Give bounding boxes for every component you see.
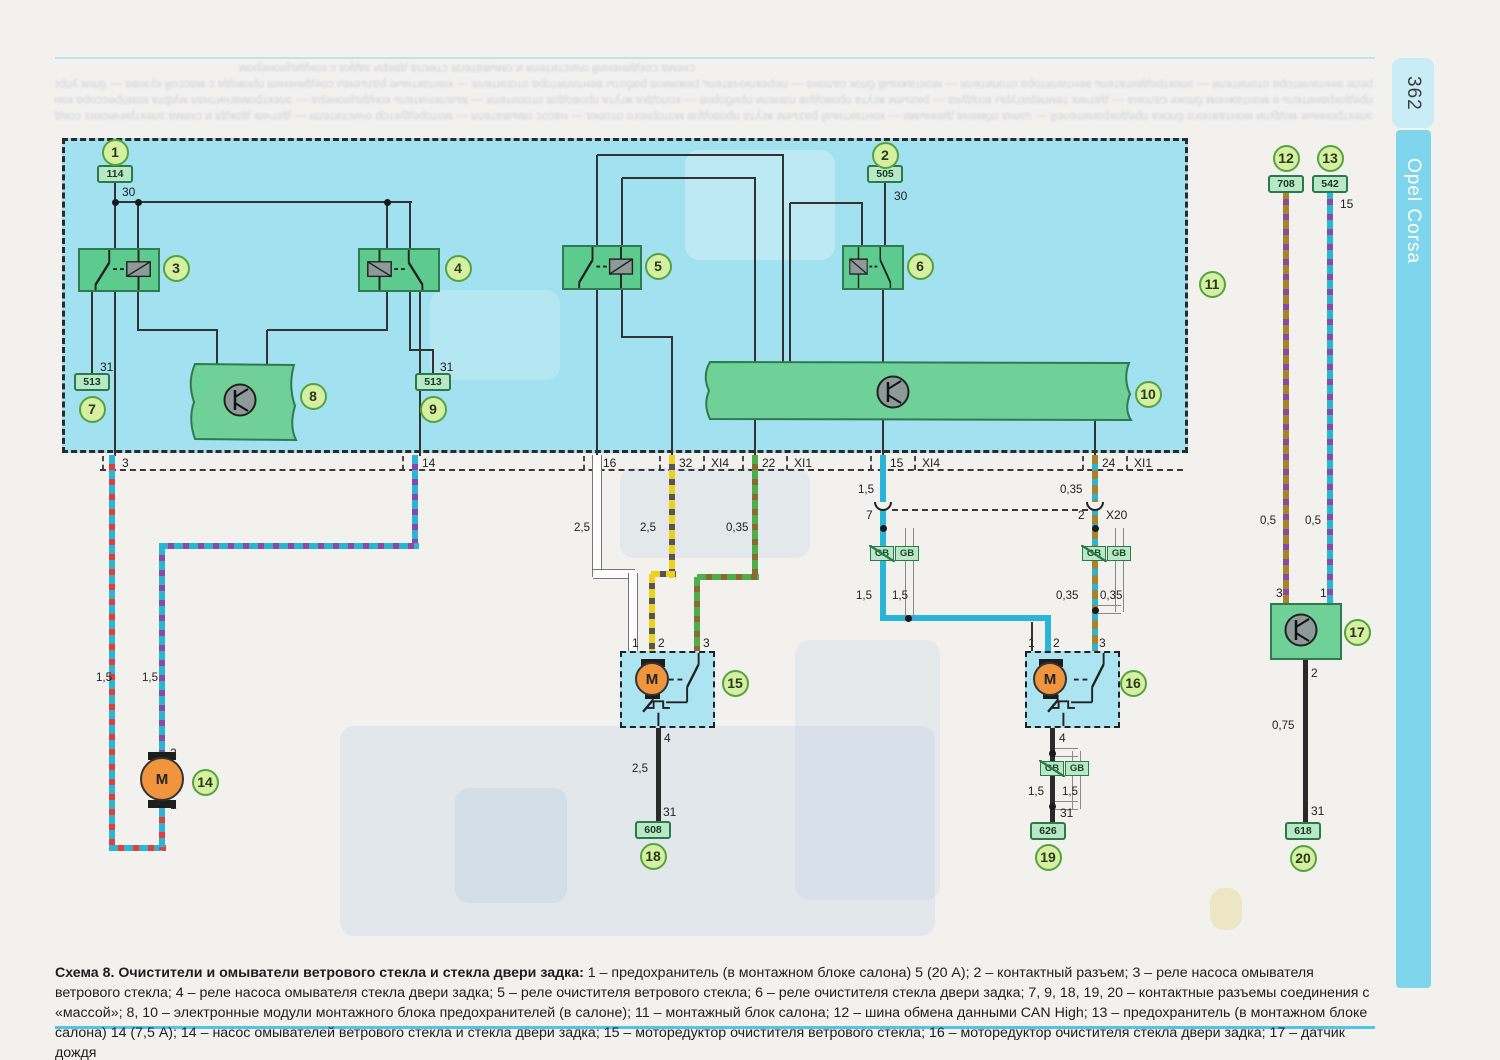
wire-label: 3 (1276, 586, 1283, 600)
wire-label: 7 (866, 508, 873, 522)
callout-circle: 13 (1317, 145, 1344, 172)
wire-label: 2,5 (632, 763, 648, 775)
callout-circle: 19 (1035, 844, 1062, 871)
code-box: 114 (97, 165, 133, 183)
wire-label: 3 (1099, 636, 1106, 650)
ghost-shape (455, 788, 567, 903)
wire (386, 202, 388, 250)
wire (671, 337, 673, 456)
connector-arc (874, 502, 892, 511)
brand-label: Opel Corsa (1402, 158, 1424, 264)
wire (1327, 190, 1333, 603)
code-box: 513 (74, 373, 110, 391)
top-rule (55, 57, 1375, 59)
transistor-icon (221, 381, 259, 419)
motor-m-label: M (1040, 669, 1060, 689)
transistor-icon (874, 373, 912, 411)
pin-number: 24 (1102, 456, 1115, 470)
junction-dot (905, 615, 912, 622)
wire (159, 546, 165, 757)
wire-label: 1 (632, 636, 639, 650)
wire-label: 1,5 (892, 590, 908, 602)
gb-strike (869, 545, 895, 562)
wire (114, 290, 116, 456)
wire-label: 31 (1311, 804, 1324, 818)
pin-bracket (786, 456, 788, 470)
gb-box: GB (895, 546, 919, 561)
wire-label: 2,5 (574, 522, 590, 534)
wire-label: 1,5 (1062, 786, 1078, 798)
wire (621, 178, 623, 247)
relay-symbol (844, 247, 902, 288)
wire-label: 2 (658, 636, 665, 650)
relay (358, 248, 440, 292)
code-box: 626 (1030, 822, 1066, 840)
junction-dot (1049, 803, 1056, 810)
pin-connector-name: XI4 (711, 456, 729, 470)
wire-label: 4 (1059, 731, 1066, 745)
code-box: 618 (1285, 822, 1321, 840)
wire-label: 30 (894, 189, 907, 203)
wire (410, 349, 434, 351)
wire-label: 1,5 (142, 672, 158, 684)
callout-circle: 18 (640, 843, 667, 870)
brand-sidebar: Opel Corsa (1396, 130, 1431, 988)
wire (649, 574, 655, 653)
pin-number: 22 (762, 456, 775, 470)
wire (267, 329, 387, 331)
wire (1303, 660, 1308, 824)
wire-label: 3 (703, 636, 710, 650)
wire-label: 31 (440, 360, 453, 374)
wire-label: 0,35 (1060, 484, 1082, 496)
pin-bracket (870, 456, 872, 470)
callout-circle: 14 (192, 769, 219, 796)
wire (138, 329, 218, 331)
wire-label: 0,5 (1305, 515, 1321, 527)
wire (880, 455, 886, 621)
ghost-text-line: схема соединений очистителя и омывателя … (215, 62, 695, 76)
callout-circle: 15 (722, 670, 749, 697)
gb-strike (1081, 545, 1107, 562)
wire (754, 420, 756, 456)
wire-label: 2 (1311, 666, 1318, 680)
junction-dot (384, 199, 391, 206)
wire (1095, 605, 1121, 614)
pin-number: 3 (122, 456, 129, 470)
relay-symbol (360, 250, 438, 290)
wire (622, 177, 756, 179)
ghost-text-line: предохранитель в монтажном блоке салона … (55, 94, 1373, 108)
wire-label: 15 (1340, 197, 1353, 211)
transistor-symbol (221, 381, 259, 419)
wire-label: 0,35 (726, 522, 748, 534)
relay (562, 245, 642, 290)
pin-bracket (914, 456, 916, 470)
code-box: 513 (415, 373, 451, 391)
wire (91, 290, 93, 374)
wire (137, 290, 139, 331)
ghost-shape (685, 150, 835, 260)
wire (884, 183, 886, 247)
relay (842, 245, 904, 290)
callout-circle: 12 (1273, 145, 1300, 172)
callout-circle: 6 (907, 253, 934, 280)
callout-circle: 9 (420, 396, 447, 423)
ghost-shape (620, 468, 810, 558)
wire-label: 1,5 (856, 590, 872, 602)
wire-label: 0,75 (1272, 720, 1294, 732)
pin-bracket (742, 456, 744, 470)
transistor-icon (1282, 611, 1320, 649)
wire-label: 30 (122, 185, 135, 199)
gb-box: GB (1065, 761, 1089, 776)
wire (266, 330, 268, 364)
callout-circle: 7 (79, 396, 106, 423)
transistor-symbol (1282, 611, 1320, 649)
wire (409, 290, 411, 351)
callout-circle: 8 (300, 383, 327, 410)
motor-internal (622, 653, 713, 726)
wire (656, 728, 661, 824)
wire (905, 528, 914, 620)
wire-label: X20 (1106, 508, 1127, 522)
pin-bracket (703, 456, 705, 470)
pin-bracket (402, 456, 404, 470)
wire (789, 203, 791, 364)
pin-number: 15 (890, 456, 903, 470)
figure-caption: Схема 8. Очистители и омыватели ветровог… (55, 964, 1377, 1060)
wire-label: 2 (1078, 508, 1085, 522)
wire-label: 31 (100, 360, 113, 374)
motor-m-label: M (642, 669, 662, 689)
pin-connector-name: XI4 (922, 456, 940, 470)
wire (216, 330, 218, 364)
junction-dot (135, 199, 142, 206)
relay-symbol (80, 250, 158, 290)
wire (790, 202, 863, 204)
junction-dot (1092, 525, 1099, 532)
wire (137, 202, 139, 250)
wire (752, 455, 758, 580)
wire (386, 290, 388, 331)
electronic-module (700, 360, 1135, 422)
wire-label: 2 (1053, 636, 1060, 650)
gb-box: GB (1107, 546, 1131, 561)
wire-label: 0,35 (1100, 590, 1122, 602)
wire (115, 201, 412, 203)
callout-circle: 4 (445, 255, 472, 282)
pin-bracket (583, 456, 585, 470)
gb-strike (1039, 760, 1065, 777)
wire (882, 420, 884, 456)
pin-bracket (1126, 456, 1128, 470)
gb-box: GB (1040, 761, 1064, 776)
callout-circle: 5 (645, 253, 672, 280)
wire-label: 31 (1060, 806, 1073, 820)
ghost-shape (1210, 888, 1242, 930)
wire-label: 1 (1320, 586, 1327, 600)
wire (1094, 420, 1096, 456)
page-number: 362 (1402, 76, 1424, 111)
wire (159, 808, 165, 850)
wire (882, 288, 884, 364)
callout-circle: 2 (872, 142, 899, 169)
wiper-motor-box (620, 651, 715, 728)
pin-number: 32 (679, 456, 692, 470)
wire (592, 455, 602, 577)
wire (782, 155, 784, 364)
connector-arc (1086, 502, 1104, 511)
wire-label: 4 (664, 731, 671, 745)
pin-bracket (1082, 456, 1084, 470)
wire-label: 0,5 (1260, 515, 1276, 527)
manual-page: { "sidebar": { "page_number": "362", "br… (0, 0, 1500, 1060)
wire-label: 1,5 (96, 672, 112, 684)
wire (861, 203, 863, 247)
code-box: 542 (1312, 175, 1348, 193)
wire-label: 1 (170, 798, 177, 812)
wire (109, 845, 166, 851)
wire (114, 202, 116, 250)
pin-number: 14 (422, 456, 435, 470)
relay-symbol (564, 247, 640, 288)
wire (409, 202, 411, 250)
gb-box: GB (870, 546, 894, 561)
callout-circle: 1 (102, 139, 129, 166)
gb-box: GB (1082, 546, 1106, 561)
junction-dot (1049, 750, 1056, 757)
wire (1045, 618, 1051, 653)
wire (159, 543, 419, 549)
connector-row-line (100, 469, 1183, 471)
callout-circle: 16 (1120, 670, 1147, 697)
wire-label: 1 (1028, 636, 1035, 650)
callout-circle: 20 (1290, 845, 1317, 872)
pin-bracket (102, 456, 104, 470)
pin-connector-name: XI1 (794, 456, 812, 470)
code-box: 708 (1268, 175, 1304, 193)
connector-x20-line (892, 509, 1088, 511)
transistor-symbol (874, 373, 912, 411)
wire (622, 336, 673, 338)
callout-circle: 10 (1135, 381, 1162, 408)
wire (1283, 190, 1289, 603)
wire-label: 2 (170, 746, 177, 760)
wire-label: 0,35 (1056, 590, 1078, 602)
wire-label: 31 (663, 805, 676, 819)
wire (109, 455, 115, 851)
wire (697, 574, 759, 580)
page-number-tab: 362 (1392, 58, 1434, 128)
callout-circle: 11 (1199, 271, 1226, 298)
wire (754, 178, 756, 364)
ghost-text-line: реле вентилятора отопителя — электродвиг… (55, 78, 1373, 92)
pin-number: 16 (603, 456, 616, 470)
wire (694, 577, 700, 653)
wire (621, 288, 623, 338)
junction-dot (880, 525, 887, 532)
callout-circle: 3 (163, 255, 190, 282)
wire (596, 155, 598, 247)
caption-title: Схема 8. Очистители и омыватели ветровог… (55, 965, 584, 981)
wire-label: 1,5 (858, 484, 874, 496)
motor-m-label: M (152, 769, 172, 789)
wire (669, 455, 675, 578)
pin-connector-name: XI1 (1134, 456, 1152, 470)
wire-label: 1,5 (1028, 786, 1044, 798)
wire (597, 154, 784, 156)
ghost-text-line: электронные модули монтажного блока пред… (55, 110, 1373, 124)
ghost-shape (795, 640, 940, 900)
pin-bracket (659, 456, 661, 470)
wire (596, 288, 598, 456)
junction-dot (1092, 607, 1099, 614)
code-box: 608 (635, 821, 671, 839)
wire (412, 455, 418, 549)
wire-label: 2,5 (640, 522, 656, 534)
junction-dot (112, 199, 119, 206)
relay (78, 248, 160, 292)
callout-circle: 17 (1344, 619, 1371, 646)
